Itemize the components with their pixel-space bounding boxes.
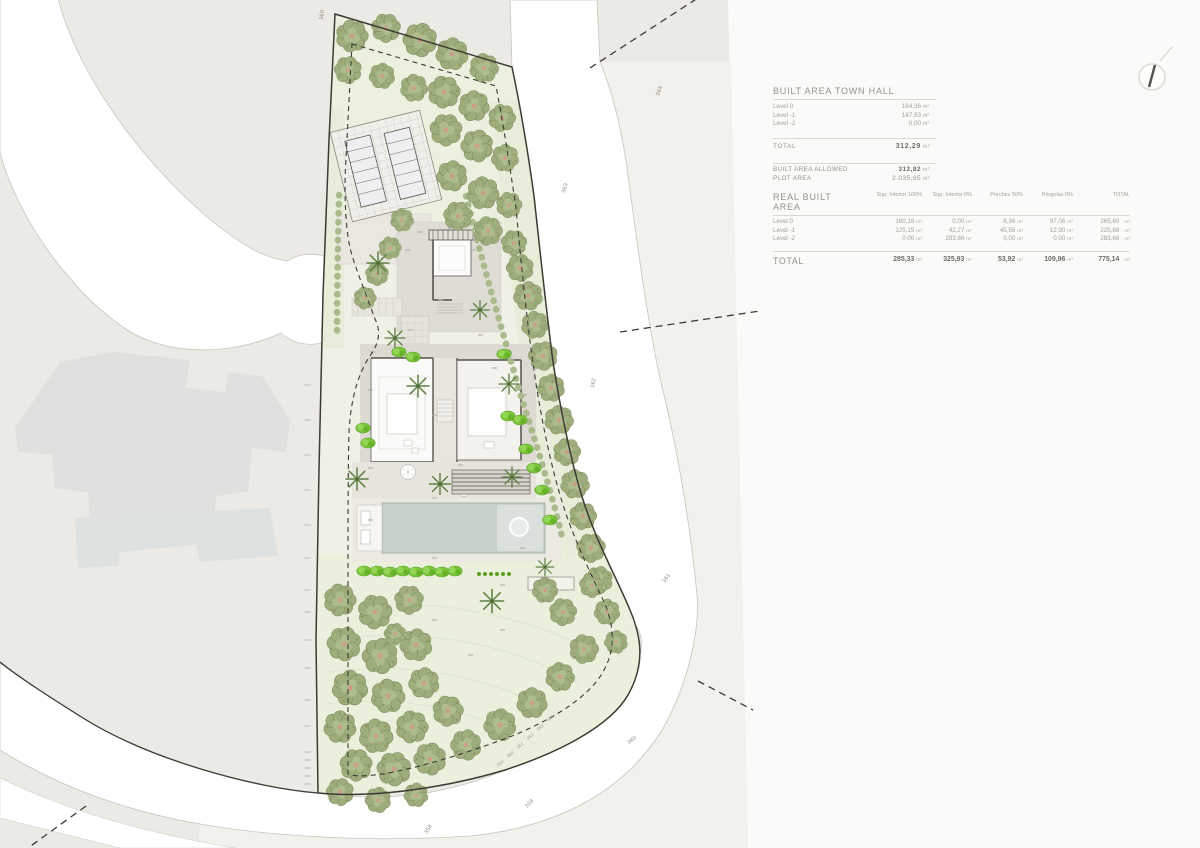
total-cell: 775,14m² [1073,252,1130,266]
contour-label: 360 [319,10,326,20]
built-area-allowed-row: BUILT AREA ALLOWED 312,82 m² [773,166,936,175]
cell: 12,90m² [1023,227,1073,236]
town-hall-table-title: BUILT AREA TOWN HALL [773,86,936,100]
total-row: TOTAL 312,29 m² [773,141,936,154]
row-label: Level -1 [773,227,861,236]
cell: 225,88m² [1073,227,1130,236]
divider [773,163,936,164]
total-cell: 285,33m² [861,252,922,266]
column-header: Porches 50% [972,192,1023,216]
site-plan-drawing: 360 364 363 362 361 360 359 358 359 360 … [0,0,1200,848]
built-area-town-hall-table: BUILT AREA TOWN HALL Level 0 164,36 m² L… [773,86,936,183]
real-built-area-table: REAL BUILT AREA Sup. Interior 100% Sup. … [773,192,1130,266]
total-cell: 109,96m² [1023,252,1073,266]
cell: 42,27m² [922,227,972,236]
total-label: TOTAL [773,252,861,266]
site-plan-sheet: 360 364 363 362 361 360 359 358 359 360 … [0,0,1200,848]
plot-area-row: PLOT AREA 2.035,85 m² [773,175,936,184]
pool-spa-circle [510,518,528,536]
column-header: Sup. Interior 100% [861,192,922,216]
cell: 0,00m² [1023,235,1073,244]
total-cell: 325,93m² [922,252,972,266]
cell: 0,00m² [972,235,1023,244]
cell: 0,00m² [861,235,922,244]
cell: 283,66m² [922,235,972,244]
column-header: Sup. Interior 0% [922,192,972,216]
cell: 97,06m² [1023,216,1073,227]
real-built-area-title: REAL BUILT AREA [773,192,861,216]
total-cell: 53,92m² [972,252,1023,266]
cell: 0,00m² [922,216,972,227]
divider [773,138,936,139]
cell: 8,36m² [972,216,1023,227]
column-header: Pérgolas 0% [1023,192,1073,216]
column-header: TOTAL [1073,192,1130,216]
table-row: Level -1 147,93 m² [773,112,936,121]
north-arrow-icon [1139,47,1172,90]
cell: 125,15m² [861,227,922,236]
cell: 283,66m² [1073,235,1130,244]
table-row: Level 0 164,36 m² [773,103,936,112]
cell: 45,56m² [972,227,1023,236]
cell: 160,18m² [861,216,922,227]
table-row: Level -2 0,00 m² [773,120,936,129]
row-label: Level -2 [773,235,861,244]
cell: 265,60m² [1073,216,1130,227]
row-label: Level 0 [773,216,861,227]
